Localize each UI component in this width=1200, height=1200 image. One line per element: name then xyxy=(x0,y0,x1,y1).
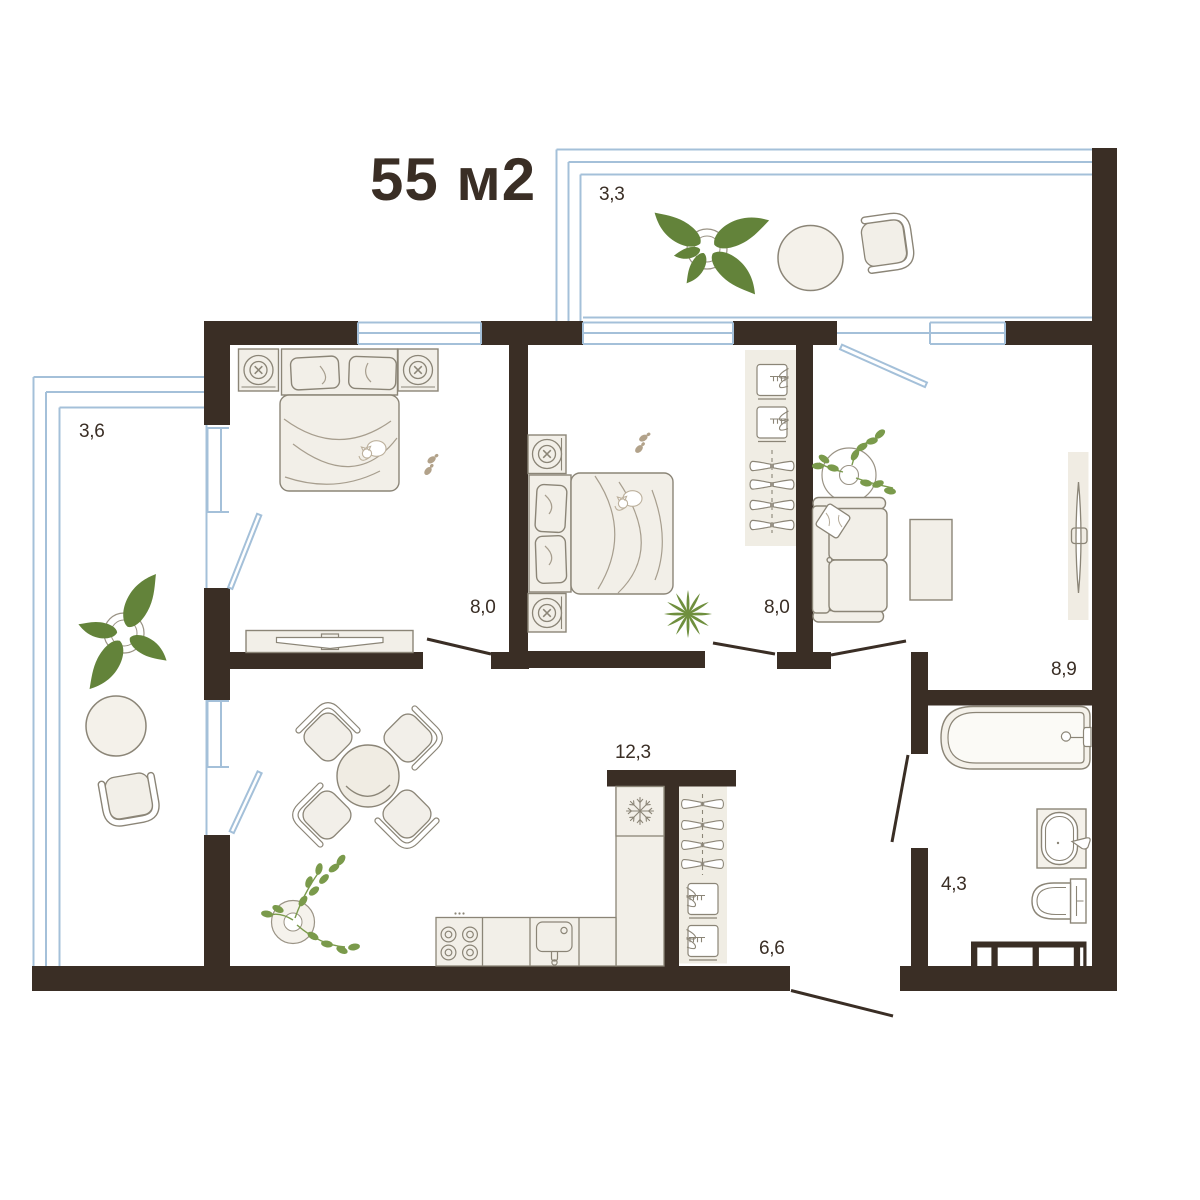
svg-text:55 м2: 55 м2 xyxy=(370,146,536,213)
svg-text:12,3: 12,3 xyxy=(615,742,651,763)
svg-text:6,6: 6,6 xyxy=(759,938,785,959)
svg-text:3,3: 3,3 xyxy=(599,184,625,205)
svg-text:8,0: 8,0 xyxy=(470,597,496,618)
svg-text:8,0: 8,0 xyxy=(764,597,790,618)
svg-text:8,9: 8,9 xyxy=(1051,659,1077,680)
svg-text:3,6: 3,6 xyxy=(79,421,105,442)
svg-text:4,3: 4,3 xyxy=(941,874,967,895)
